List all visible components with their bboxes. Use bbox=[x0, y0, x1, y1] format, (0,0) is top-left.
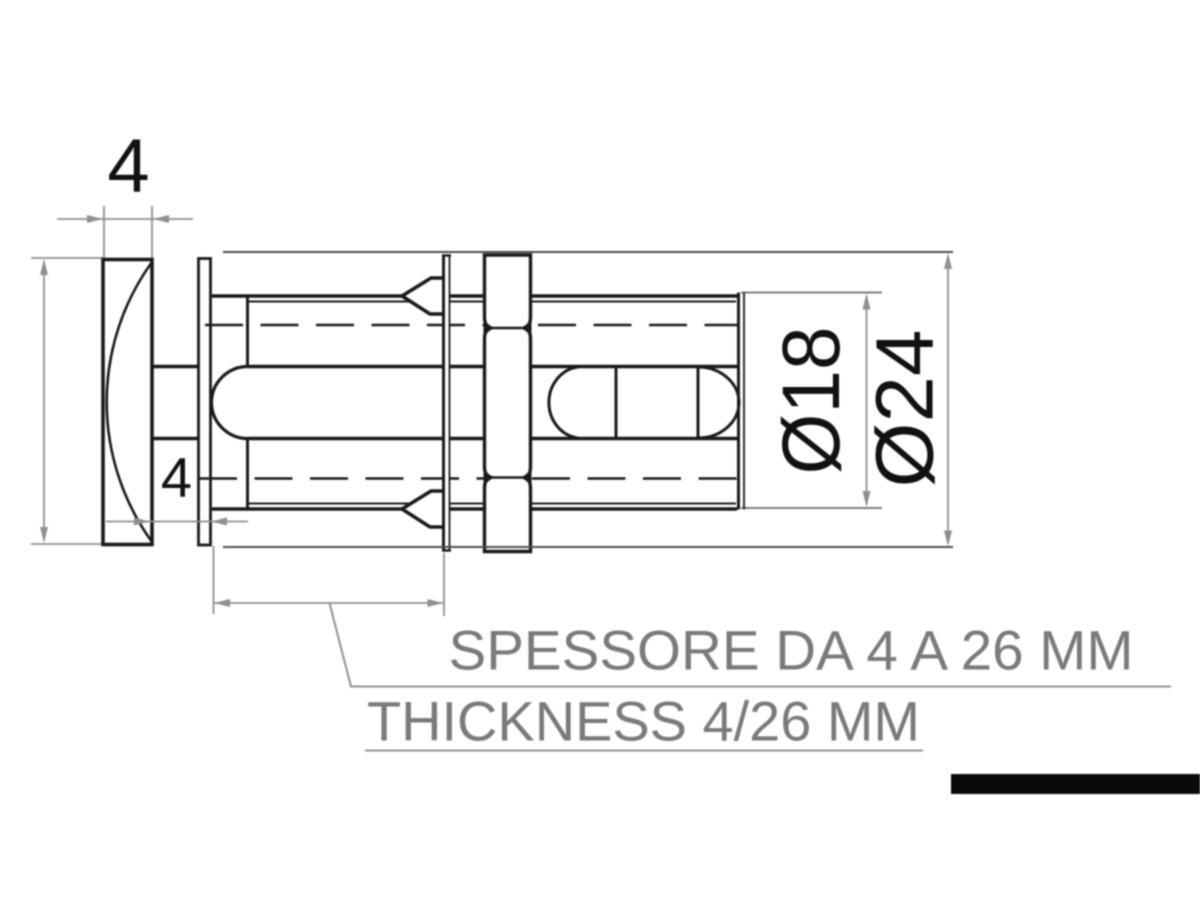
svg-text:4: 4 bbox=[161, 446, 192, 509]
svg-text:Ø18: Ø18 bbox=[766, 327, 857, 475]
svg-text:THICKNESS 4/26 MM: THICKNESS 4/26 MM bbox=[367, 690, 920, 753]
svg-text:Ø24: Ø24 bbox=[860, 330, 951, 488]
svg-text:SPESSORE DA 4 A 26 MM: SPESSORE DA 4 A 26 MM bbox=[449, 619, 1134, 682]
svg-text:4: 4 bbox=[107, 124, 149, 209]
